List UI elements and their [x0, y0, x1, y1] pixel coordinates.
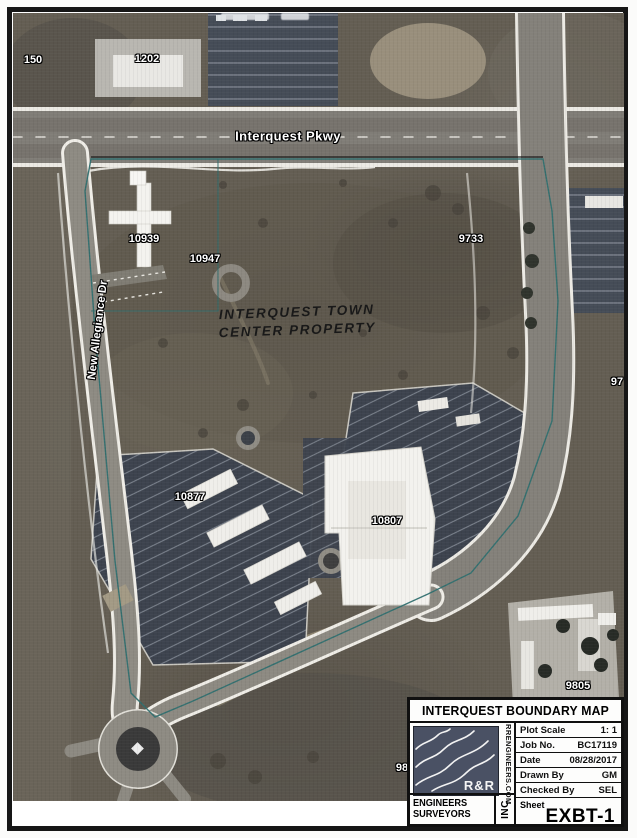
sheet-number: EXBT-1 [545, 806, 615, 828]
roundabout [99, 710, 177, 788]
title-block-fields: Plot Scale 1: 1 Job No. BC17119 Date 08/… [516, 723, 621, 824]
company-line2: SURVEYORS [413, 810, 488, 821]
cutoff-roof-text [221, 13, 269, 20]
company-name-block: ENGINEERS SURVEYORS INC [410, 793, 514, 824]
field-job-no: Job No. BC17119 [516, 738, 621, 753]
field-date: Date 08/28/2017 [516, 753, 621, 768]
parcel-label-1202: 1202 [135, 53, 159, 65]
parcel-label-10877: 10877 [175, 491, 206, 503]
cutoff-roof-text [281, 13, 309, 20]
map-title: INTERQUEST BOUNDARY MAP [422, 703, 609, 718]
logo-website: RRENGINEERS.COM [504, 724, 513, 796]
southeast-office-cluster [508, 591, 619, 707]
field-plot-scale: Plot Scale 1: 1 [516, 723, 621, 738]
title-block: INTERQUEST BOUNDARY MAP R&R RRENGINEERS [407, 697, 624, 827]
parcel-label-97-partial: 97 [611, 376, 623, 388]
title-block-logo-cell: R&R RRENGINEERS.COM ENGINEERS SURVEYORS … [410, 723, 516, 824]
field-sheet: Sheet EXBT-1 [516, 798, 621, 824]
parcel-label-9733: 9733 [459, 233, 483, 245]
aerial-photo: 150 1202 Interquest Pkwy 10939 10947 973… [13, 13, 624, 801]
parcel-label-150: 150 [24, 54, 42, 66]
exhibit-sheet: 150 1202 Interquest Pkwy 10939 10947 973… [0, 0, 637, 838]
logo-monogram: R&R [464, 778, 495, 793]
rr-logo: R&R [413, 726, 499, 796]
top-parking-lot [208, 13, 338, 106]
parcel-label-10807: 10807 [372, 515, 403, 527]
parcel-label-10947: 10947 [190, 253, 221, 265]
field-checked-by: Checked By SEL [516, 783, 621, 798]
property-name-label: INTERQUEST TOWN CENTER PROPERTY [218, 301, 376, 342]
company-suffix: INC [494, 795, 514, 824]
street-label-interquest-pkwy: Interquest Pkwy [235, 129, 341, 144]
parcel-label-10939: 10939 [129, 233, 160, 245]
field-drawn-by: Drawn By GM [516, 768, 621, 783]
parcel-label-9805: 9805 [566, 680, 590, 692]
title-block-header: INTERQUEST BOUNDARY MAP [410, 700, 621, 723]
